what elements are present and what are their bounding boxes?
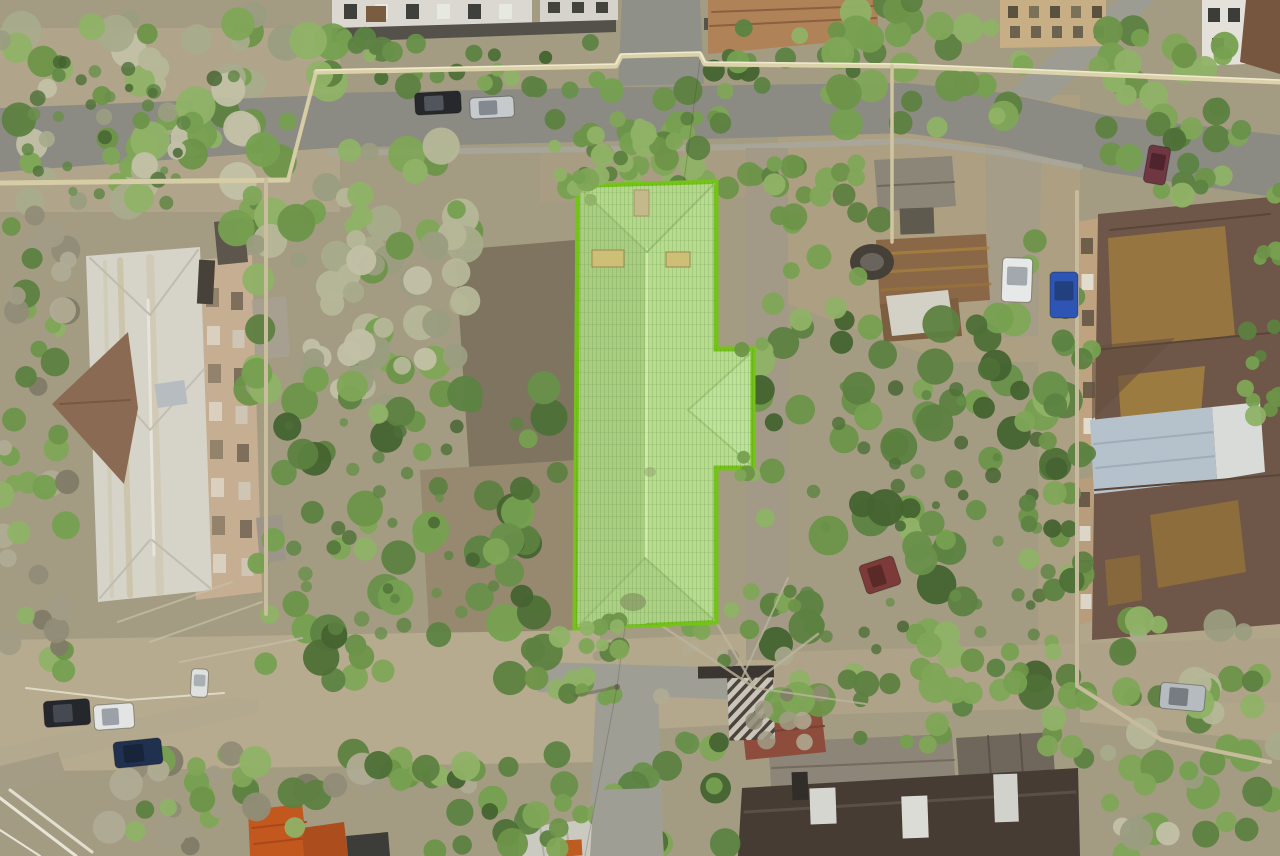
tree-blob	[435, 494, 444, 503]
roof-stain-1	[620, 593, 646, 611]
tree-blob	[613, 151, 628, 166]
tree-blob	[291, 252, 307, 268]
tree-blob	[343, 282, 364, 303]
tree-blob	[7, 521, 30, 544]
tree-blob	[1043, 519, 1061, 537]
tree-blob	[1246, 356, 1260, 370]
window	[211, 478, 224, 497]
tree-blob	[545, 109, 566, 130]
tree-blob	[885, 21, 912, 48]
window	[1050, 6, 1060, 18]
tree-blob	[853, 731, 867, 745]
tree-blob	[925, 713, 949, 737]
tree-blob	[511, 585, 534, 608]
tree-blob	[48, 425, 68, 445]
tree-blob	[756, 509, 775, 528]
tree-blob	[522, 801, 549, 828]
tree-blob	[596, 639, 609, 652]
tree-blob	[278, 777, 309, 808]
tree-blob	[102, 147, 120, 165]
tree-blob	[1134, 773, 1156, 795]
tree-blob	[1044, 393, 1068, 417]
tree-blob	[346, 463, 359, 476]
tree-blob	[993, 453, 1001, 461]
tree-blob	[354, 27, 377, 50]
right-building-rust1	[1108, 226, 1235, 350]
tree-blob	[1204, 609, 1237, 642]
tree-blob	[1046, 457, 1068, 479]
tree-blob	[510, 417, 524, 431]
tree-blob	[847, 202, 868, 223]
tree-blob	[916, 404, 953, 441]
tree-blob	[953, 13, 983, 43]
tree-blob	[28, 108, 41, 121]
tree-blob	[446, 799, 473, 826]
tree-blob	[187, 757, 206, 776]
tree-blob	[412, 755, 440, 783]
tree-blob	[950, 590, 962, 602]
tree-blob	[1018, 549, 1039, 570]
tree-blob	[1177, 153, 1199, 175]
tree-blob	[609, 640, 629, 660]
tree-blob	[58, 56, 71, 69]
tree-blob	[447, 376, 483, 412]
tree-blob	[1052, 330, 1074, 352]
tree-blob	[488, 48, 501, 61]
window	[239, 482, 251, 500]
tree-blob	[1014, 411, 1035, 432]
tree-blob	[68, 187, 77, 196]
tree-blob	[921, 663, 946, 688]
tree-blob	[30, 90, 46, 106]
tree-blob	[173, 148, 183, 158]
tree-blob	[303, 367, 329, 393]
tree-blob	[681, 646, 692, 657]
tree-blob	[1061, 520, 1078, 537]
tree-blob	[503, 70, 520, 87]
tree-blob	[354, 537, 377, 560]
highlighted-building-chimney3	[634, 190, 649, 216]
tree-blob	[800, 587, 815, 602]
window	[1029, 6, 1039, 18]
tree-blob	[94, 188, 105, 199]
car-black-bottom-left	[43, 698, 91, 727]
tree-blob	[770, 206, 789, 225]
tree-blob	[528, 78, 548, 98]
tree-blob	[1192, 821, 1219, 848]
tree-blob	[32, 475, 57, 500]
tree-blob	[393, 425, 406, 438]
tree-blob	[666, 133, 684, 151]
tree-blob	[832, 417, 845, 430]
tree-blob	[1125, 606, 1154, 635]
window	[1008, 6, 1018, 18]
tree-blob	[243, 186, 263, 206]
tree-blob	[1240, 694, 1264, 718]
tree-blob	[373, 485, 386, 498]
tree-blob	[443, 344, 468, 369]
tree-blob	[207, 71, 223, 87]
window	[237, 444, 249, 462]
tree-blob	[585, 194, 597, 206]
tree-blob	[110, 767, 143, 800]
tree-blob	[993, 536, 1004, 547]
tree-blob	[926, 12, 954, 40]
tree-blob	[354, 611, 369, 626]
tree-blob	[652, 87, 676, 111]
tree-blob	[285, 817, 306, 838]
tree-blob	[734, 469, 746, 481]
tree-blob	[182, 24, 212, 54]
tree-blob	[406, 34, 426, 54]
tree-blob	[423, 128, 460, 165]
tree-blob	[104, 91, 115, 102]
tree-blob	[422, 309, 451, 338]
tree-blob	[124, 183, 154, 213]
tree-blob	[25, 206, 45, 226]
tree-blob	[762, 292, 784, 314]
car-glass	[101, 708, 119, 726]
tree-blob	[29, 565, 49, 585]
tree-blob	[337, 371, 368, 402]
tree-blob	[390, 594, 400, 604]
tree-blob	[1156, 822, 1180, 846]
window	[231, 292, 243, 310]
left-building-chimney	[197, 260, 215, 305]
tree-blob	[342, 530, 357, 545]
tree-blob	[482, 803, 499, 820]
tree-blob	[340, 418, 349, 427]
tree-blob	[447, 200, 466, 219]
tree-blob	[1120, 817, 1153, 850]
tree-blob	[39, 131, 55, 147]
tree-blob	[1115, 144, 1142, 171]
window	[1082, 310, 1094, 326]
tree-blob	[1095, 116, 1117, 138]
tree-blob	[429, 477, 448, 496]
car-glass	[1149, 152, 1167, 170]
tree-blob	[710, 113, 731, 134]
tree-blob	[44, 617, 70, 643]
tree-blob	[521, 638, 545, 662]
tree-blob	[453, 835, 472, 854]
tree-blob	[323, 773, 347, 797]
tree-blob	[53, 111, 64, 122]
tree-blob	[403, 159, 428, 184]
car-glass	[1007, 266, 1028, 285]
tree-blob	[706, 777, 723, 794]
window	[468, 4, 481, 19]
tree-blob	[755, 700, 773, 718]
tree-blob	[868, 340, 897, 369]
tree-blob	[867, 207, 893, 233]
tree-blob	[591, 144, 614, 167]
window	[1228, 8, 1240, 22]
tree-blob	[50, 297, 76, 323]
tree-blob	[403, 266, 432, 295]
aerial-photo-canvas	[0, 0, 1280, 856]
road-north-branch	[618, 0, 704, 86]
tree-blob	[767, 156, 782, 171]
tree-blob	[2, 408, 26, 432]
tree-blob	[549, 818, 569, 838]
tree-blob	[833, 184, 856, 207]
tree-blob	[579, 638, 595, 654]
car-white-small-vertical	[190, 669, 208, 698]
tree-blob	[283, 591, 309, 617]
tree-blob	[901, 91, 922, 112]
tree-blob	[985, 468, 1001, 484]
tree-blob	[260, 605, 279, 624]
tree-blob	[136, 800, 154, 818]
tree-blob	[1242, 777, 1272, 807]
tree-blob	[1028, 629, 1040, 641]
tree-blob	[888, 380, 903, 395]
dark-building-chimney2	[901, 796, 928, 839]
tree-blob	[886, 598, 895, 607]
tree-blob	[125, 821, 146, 842]
tree-blob	[374, 318, 394, 338]
tree-blob	[1010, 381, 1029, 400]
tree-blob	[364, 751, 392, 779]
window	[210, 440, 223, 459]
tree-blob	[360, 143, 379, 162]
tree-blob	[790, 309, 812, 331]
tree-blob	[922, 305, 960, 343]
tree-blob	[1179, 761, 1198, 780]
tree-blob	[610, 619, 625, 634]
tree-blob	[1100, 745, 1116, 761]
tree-blob	[93, 811, 126, 844]
tree-blob	[246, 235, 266, 255]
tree-blob	[455, 606, 468, 619]
window	[596, 2, 608, 13]
tree-blob	[717, 83, 734, 100]
window	[212, 516, 225, 535]
tree-blob	[871, 644, 881, 654]
tree-blob	[393, 357, 411, 375]
window	[1071, 6, 1081, 18]
tree-blob	[338, 139, 361, 162]
tree-blob	[1193, 180, 1208, 195]
tree-blob	[396, 618, 411, 633]
tree-blob	[634, 118, 646, 130]
tree-blob	[448, 64, 465, 81]
right-building-rust4	[1105, 555, 1142, 606]
tree-blob	[89, 65, 102, 78]
tree-blob	[780, 688, 793, 701]
tree-blob	[821, 522, 831, 532]
tree-blob	[1170, 183, 1195, 208]
tree-blob	[830, 424, 859, 453]
tree-blob	[539, 51, 552, 64]
tree-blob	[326, 540, 341, 555]
window	[1208, 8, 1220, 22]
tree-blob	[1071, 348, 1092, 369]
window	[1073, 26, 1083, 38]
tree-blob	[1112, 677, 1140, 705]
tree-blob	[428, 517, 440, 529]
tree-blob	[737, 162, 761, 186]
tree-blob	[160, 799, 177, 816]
car-black-top-road	[414, 91, 461, 115]
tree-blob	[347, 182, 373, 208]
tree-blob	[900, 735, 914, 749]
tree-blob	[945, 470, 963, 488]
window	[548, 2, 560, 13]
tree-blob	[558, 683, 578, 703]
tree-blob	[1131, 29, 1149, 47]
window	[1080, 526, 1091, 541]
tree-blob	[372, 660, 395, 683]
tree-blob	[919, 511, 944, 536]
car-glass	[53, 704, 74, 723]
car-navy-bottom-left	[113, 738, 163, 769]
dark-roof-c	[346, 832, 390, 856]
car-white-bottom-left	[93, 703, 135, 731]
tree-blob	[723, 602, 739, 618]
tree-blob	[902, 531, 932, 561]
tree-blob	[519, 429, 538, 448]
tree-blob	[493, 661, 527, 695]
window	[1082, 274, 1094, 290]
car-glass	[1168, 687, 1188, 706]
tree-blob	[465, 45, 482, 62]
tree-blob	[1245, 405, 1266, 426]
tree-blob	[765, 413, 783, 431]
left-building-vent	[154, 380, 187, 408]
shed-kennel	[900, 207, 935, 234]
tree-blob	[549, 626, 571, 648]
tree-blob	[849, 267, 868, 286]
tree-blob	[572, 170, 586, 184]
tree-blob	[62, 161, 72, 171]
tree-blob	[125, 84, 133, 92]
tree-blob	[466, 553, 480, 567]
tree-blob	[561, 82, 578, 99]
roof-stain-2	[644, 467, 656, 477]
tree-blob	[420, 231, 449, 260]
dark-building-chimney1	[809, 788, 836, 825]
tree-blob	[813, 685, 829, 701]
tree-blob	[349, 644, 374, 669]
apartment-top-b-windows	[548, 2, 608, 13]
tree-blob	[245, 314, 275, 344]
tree-blob	[954, 436, 968, 450]
tree-blob	[1026, 600, 1036, 610]
window	[406, 4, 419, 19]
tree-blob	[298, 567, 312, 581]
tree-blob	[830, 331, 853, 354]
tree-blob	[52, 68, 66, 82]
dark-building-vent-box	[792, 772, 809, 801]
tree-blob	[1216, 812, 1237, 833]
tree-blob	[1023, 229, 1047, 253]
tree-blob	[554, 794, 572, 812]
tree-blob	[791, 27, 808, 44]
tree-blob	[783, 585, 796, 598]
tree-blob	[954, 71, 979, 96]
car-glass	[424, 95, 444, 111]
tree-blob	[673, 76, 702, 105]
tree-blob	[79, 13, 106, 40]
tree-blob	[917, 348, 953, 384]
tree-blob	[891, 479, 905, 493]
car-glass	[123, 744, 145, 764]
highlighted-building-chimney2	[666, 252, 690, 267]
tree-blob	[807, 244, 832, 269]
tree-blob	[331, 521, 345, 535]
tree-blob	[859, 627, 870, 638]
window	[208, 364, 221, 383]
tree-blob	[389, 768, 412, 791]
tree-blob	[228, 70, 240, 82]
tree-blob	[477, 75, 493, 91]
tree-blob	[599, 78, 624, 103]
tree-blob	[242, 792, 271, 821]
tree-blob	[867, 489, 904, 526]
tree-blob	[1019, 495, 1036, 512]
tree-blob	[33, 166, 44, 177]
tree-blob	[653, 688, 669, 704]
tree-blob	[382, 42, 403, 63]
tree-blob	[488, 580, 499, 591]
tree-blob	[879, 673, 900, 694]
building-top-e-roof	[1240, 0, 1280, 74]
tree-blob	[337, 341, 362, 366]
tree-blob	[133, 112, 150, 129]
tree-blob	[451, 286, 481, 316]
tree-blob	[754, 77, 771, 94]
tree-blob	[927, 117, 948, 138]
tree-blob	[444, 551, 453, 560]
tree-blob	[239, 746, 271, 778]
window	[236, 406, 248, 424]
window	[1092, 6, 1102, 18]
tree-blob	[242, 263, 274, 295]
tree-blob	[8, 287, 26, 305]
tree-blob	[789, 609, 825, 645]
tree-blob	[942, 677, 969, 704]
window	[1031, 26, 1041, 38]
tree-blob	[966, 314, 988, 336]
tree-blob	[1235, 818, 1259, 842]
tree-blob	[277, 204, 315, 242]
tree-blob	[221, 7, 254, 40]
window	[240, 520, 252, 538]
tree-blob	[375, 627, 388, 640]
car-glass	[194, 674, 206, 686]
window	[213, 554, 226, 573]
tree-blob	[285, 421, 294, 430]
tree-blob	[346, 245, 376, 275]
tree-blob	[1041, 706, 1066, 731]
tree-blob	[96, 109, 112, 125]
tree-blob	[547, 462, 568, 483]
tree-blob	[76, 74, 87, 85]
tree-blob	[121, 62, 135, 76]
car-glass	[478, 100, 497, 115]
tree-blob	[974, 626, 986, 638]
tree-blob	[368, 404, 388, 424]
tree-blob	[22, 143, 34, 155]
tree-blob	[1093, 16, 1123, 46]
tree-blob	[1045, 644, 1062, 661]
tree-blob	[142, 99, 154, 111]
tree-blob	[17, 607, 35, 625]
tree-blob	[734, 342, 749, 357]
tree-blob	[1043, 481, 1067, 505]
